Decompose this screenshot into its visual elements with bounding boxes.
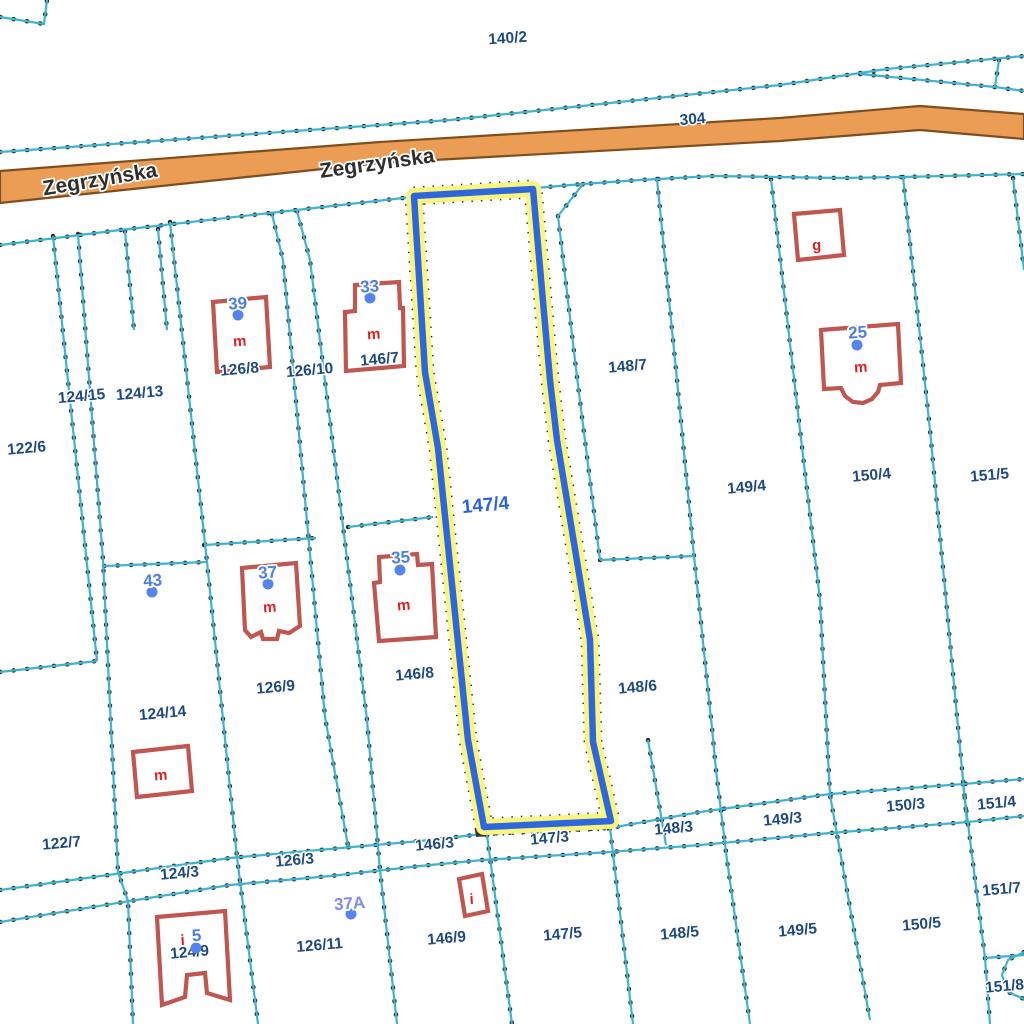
parcel-label-148-7: 148/7 — [608, 356, 648, 376]
parcel-boundary-e-151 — [1013, 178, 1024, 270]
parcel-label-126-11: 126/11 — [296, 935, 344, 956]
parcel-label-122-7: 122/7 — [42, 833, 82, 853]
cadastral-map-canvas[interactable]: mmgmmmmiiZegrzyńskaZegrzyńska140/2304122… — [0, 0, 1024, 1024]
parcel-label-148-3: 148/3 — [654, 818, 695, 838]
parcel-label-124-13: 124/13 — [115, 383, 164, 404]
parcel-label-124-15: 124/15 — [57, 386, 106, 407]
parcel-label-151-5: 151/5 — [970, 465, 1011, 485]
parcel-boundary-e-149 — [771, 179, 870, 1020]
parcel-label-148-5: 148/5 — [660, 923, 701, 943]
parcel-boundary-w1 — [53, 236, 97, 661]
parcel-boundary-s-146-9 — [487, 835, 512, 1024]
parcel-label-124-9: 124/9 — [170, 942, 211, 962]
address-number-35: 35 — [391, 547, 411, 567]
parcel-label-126-8: 126/8 — [220, 359, 261, 379]
building-i-146-9 — [459, 874, 488, 916]
address-number-43: 43 — [143, 570, 163, 590]
selected-parcel-outline[interactable] — [414, 189, 611, 827]
parcel-label-146-9: 146/9 — [427, 928, 468, 948]
parcel-boundary-corner-top-left — [0, 0, 47, 24]
parcel-label-124-3: 124/3 — [160, 863, 201, 883]
parcel-label-151-4: 151/4 — [977, 793, 1018, 813]
parcel-label-126-9: 126/9 — [256, 677, 297, 697]
parcel-boundary-north-branch — [860, 74, 1024, 91]
parcel-boundary-e-148 — [657, 179, 750, 1024]
parcel-label-146-7: 146/7 — [360, 349, 400, 369]
parcel-label-150-4: 150/4 — [852, 465, 893, 485]
parcel-boundary-h-122-6-bottom — [0, 661, 97, 672]
building-type-label-g: g — [812, 237, 822, 255]
survey-dots-lane-west — [272, 214, 348, 846]
parcel-boundary-s-147-5 — [610, 828, 633, 1024]
parcel-label-147-5: 147/5 — [543, 924, 584, 944]
building-type-label-39: m — [232, 333, 246, 351]
survey-dots-e-148 — [657, 179, 750, 1024]
parcel-label-146-8: 146/8 — [395, 664, 436, 684]
parcel-boundary-h-126-9-top — [204, 538, 316, 545]
address-number-39: 39 — [228, 293, 248, 313]
parcel-label-150-3: 150/3 — [886, 795, 927, 815]
parcel-label-147-3: 147/3 — [530, 828, 571, 848]
parcel-boundary-w-stub-b — [158, 229, 167, 330]
building-type-label-m-124-14: m — [153, 767, 167, 785]
parcel-boundary-h-146-8-top — [348, 517, 433, 527]
address-number-37: 37 — [258, 562, 278, 582]
parcel-label-126-3: 126/3 — [275, 850, 316, 870]
parcel-label-150-5: 150/5 — [902, 914, 943, 934]
parcel-label-140-2: 140/2 — [488, 29, 528, 49]
address-number-25: 25 — [848, 322, 868, 342]
building-type-label-33: m — [366, 326, 380, 344]
parcel-label-126-10: 126/10 — [285, 360, 334, 381]
parcel-label-124-14: 124/14 — [138, 703, 187, 724]
building-type-label-25: m — [853, 359, 867, 377]
parcel-label-151-8: 151/8 — [985, 976, 1024, 996]
address-number-5: 5 — [191, 926, 202, 946]
parcel-label-122-6: 122/6 — [7, 438, 48, 458]
selected-parcel-label: 147/4 — [461, 493, 511, 518]
building-type-label-37: m — [262, 599, 276, 617]
address-number-37A: 37A — [333, 893, 365, 914]
parcel-boundary-lane-west — [272, 214, 348, 846]
address-number-33: 33 — [360, 276, 380, 296]
parcel-label-304: 304 — [679, 110, 707, 129]
map-viewport[interactable]: mmgmmmmiiZegrzyńskaZegrzyńska140/2304122… — [0, 0, 1024, 1024]
parcel-boundary-w-stub-a — [125, 231, 134, 330]
parcel-label-149-5: 149/5 — [778, 920, 819, 940]
parcel-label-149-3: 149/3 — [763, 809, 804, 829]
parcel-label-151-7: 151/7 — [982, 879, 1022, 899]
parcel-label-149-4: 149/4 — [727, 477, 768, 497]
parcel-label-146-3: 146/3 — [415, 834, 456, 854]
building-type-label-35: m — [396, 597, 410, 615]
parcel-label-148-6: 148/6 — [618, 677, 659, 697]
